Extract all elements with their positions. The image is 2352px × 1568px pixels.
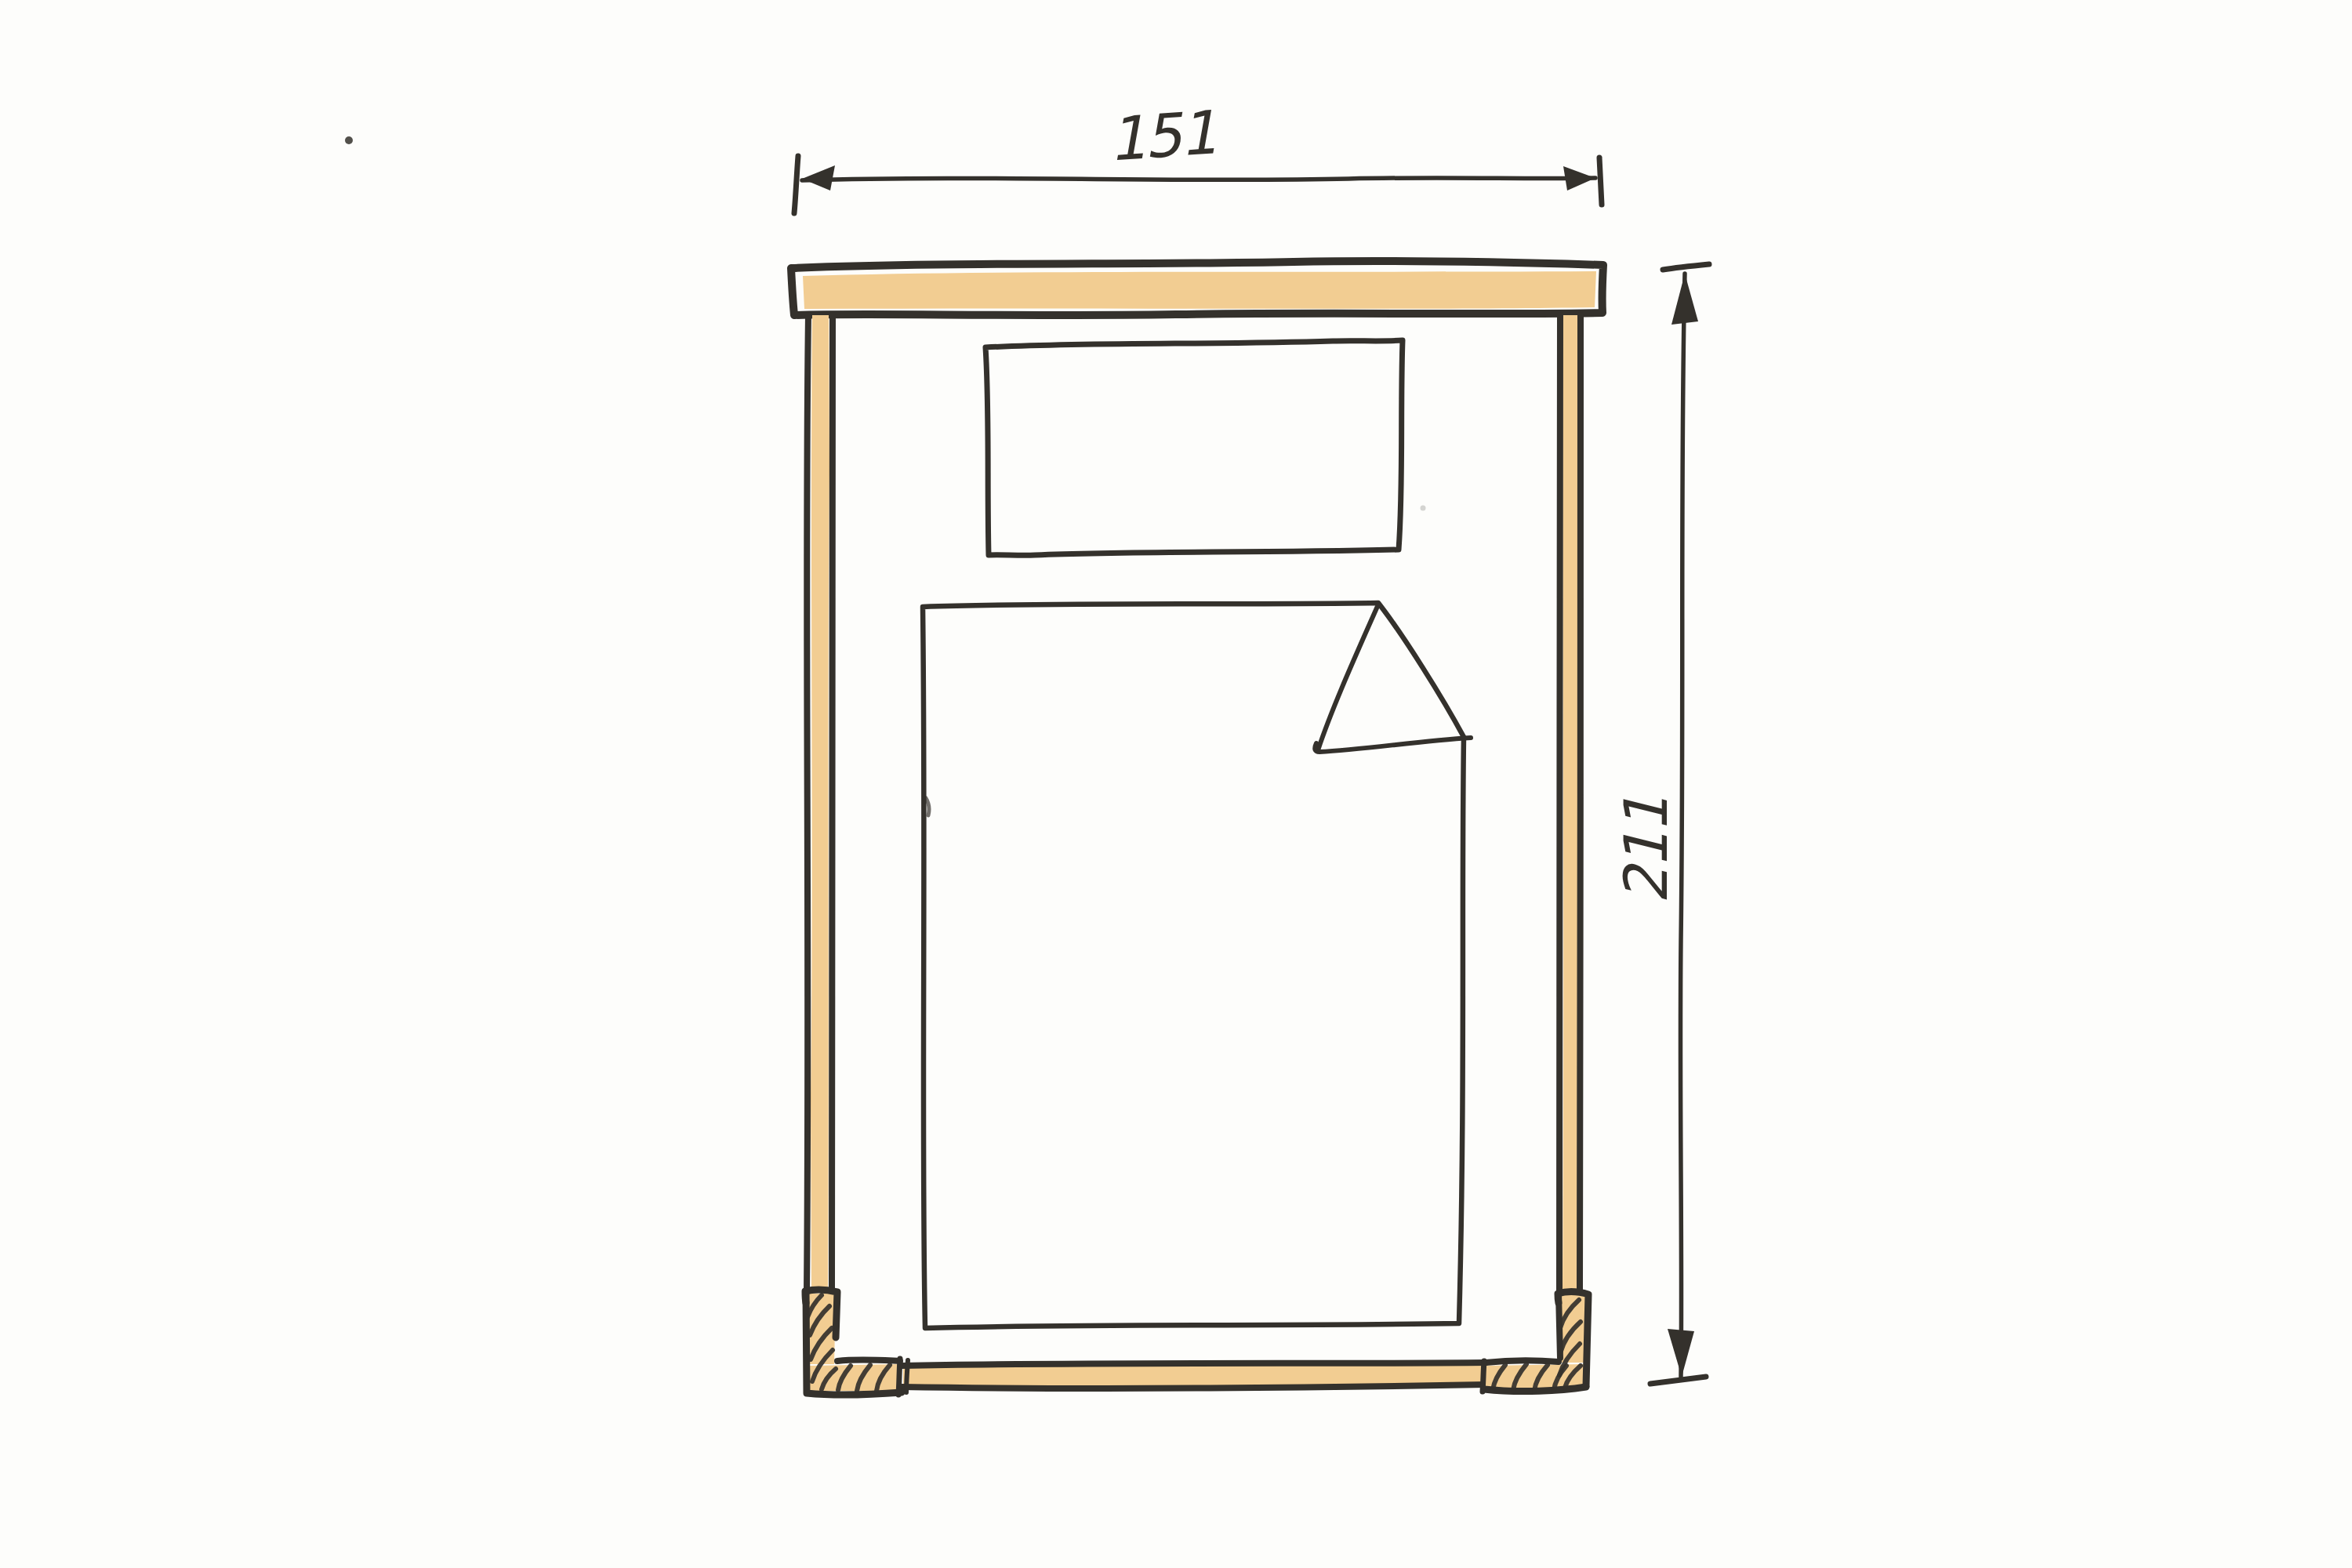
right-rail-fill bbox=[1563, 315, 1579, 1290]
height-dimension-value: 211 bbox=[1611, 797, 1681, 904]
right-rail-inner-edge bbox=[1559, 315, 1560, 1290]
right-rail-outer-edge bbox=[1580, 315, 1581, 1290]
paper-background bbox=[0, 0, 2352, 1568]
corner-left-end-tick bbox=[906, 1360, 908, 1392]
ink-speck bbox=[1421, 506, 1426, 511]
width-dimension-value: 151 bbox=[1106, 97, 1218, 174]
corner-left-top-outline bbox=[837, 1359, 900, 1361]
left-rail-outer-edge bbox=[807, 315, 808, 1290]
width-dimension-line bbox=[802, 178, 1595, 180]
left-rail-inner-edge bbox=[832, 315, 833, 1290]
width-dimension-left-tick bbox=[794, 156, 798, 213]
ink-speck bbox=[345, 136, 353, 144]
left-rail-fill bbox=[811, 315, 829, 1290]
width-dimension-right-tick bbox=[1599, 158, 1602, 205]
bed-plan-sketch-page: 151 211 bbox=[0, 0, 2352, 1568]
corner-right-end-tick bbox=[1483, 1361, 1484, 1392]
bottom-rail-bottom-edge bbox=[902, 1385, 1486, 1388]
corner-right-top-outline bbox=[1486, 1360, 1559, 1363]
bed-plan-sketch: 151 211 bbox=[0, 0, 2352, 1568]
bottom-rail-top-edge bbox=[902, 1363, 1486, 1366]
corner-left-end-tick bbox=[898, 1359, 900, 1395]
headboard-fill bbox=[803, 271, 1596, 309]
